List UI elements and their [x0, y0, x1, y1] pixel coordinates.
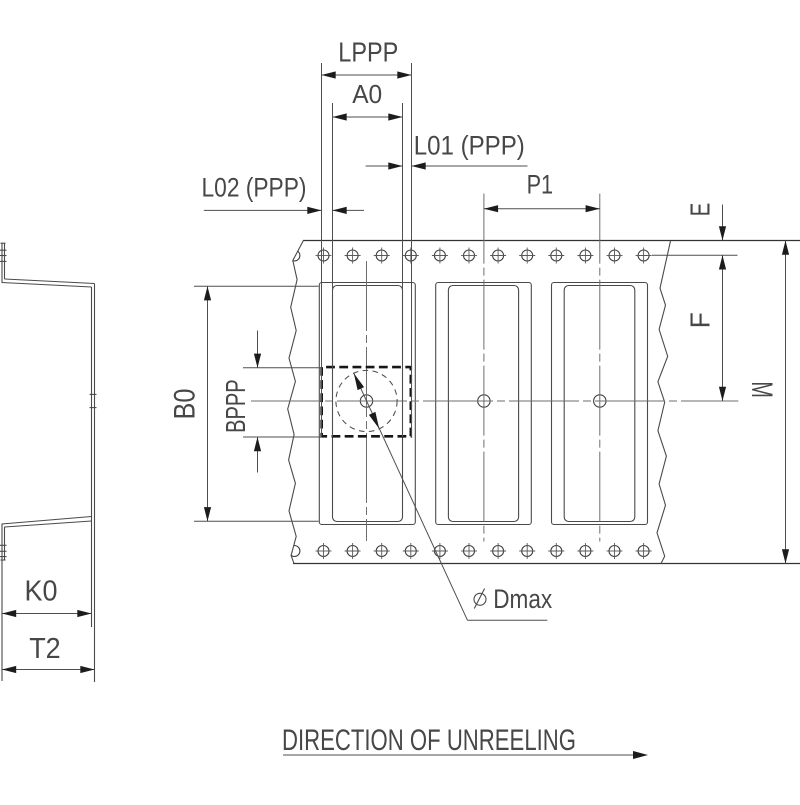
- svg-text:B0: B0: [168, 389, 201, 420]
- svg-text:F: F: [684, 312, 715, 328]
- svg-text:M: M: [745, 381, 778, 398]
- svg-text:LPPP: LPPP: [338, 37, 398, 68]
- svg-text:A0: A0: [352, 79, 382, 109]
- svg-text:T2: T2: [29, 633, 61, 665]
- svg-text:E: E: [684, 203, 715, 217]
- svg-text:Dmax: Dmax: [493, 584, 552, 614]
- svg-text:DIRECTION OF UNREELING: DIRECTION OF UNREELING: [282, 724, 576, 757]
- svg-text:L02 (PPP): L02 (PPP): [202, 173, 307, 203]
- svg-text:P1: P1: [527, 170, 554, 200]
- svg-text:L01 (PPP): L01 (PPP): [414, 131, 525, 161]
- svg-text:K0: K0: [25, 576, 58, 608]
- svg-text:BPPP: BPPP: [220, 379, 251, 433]
